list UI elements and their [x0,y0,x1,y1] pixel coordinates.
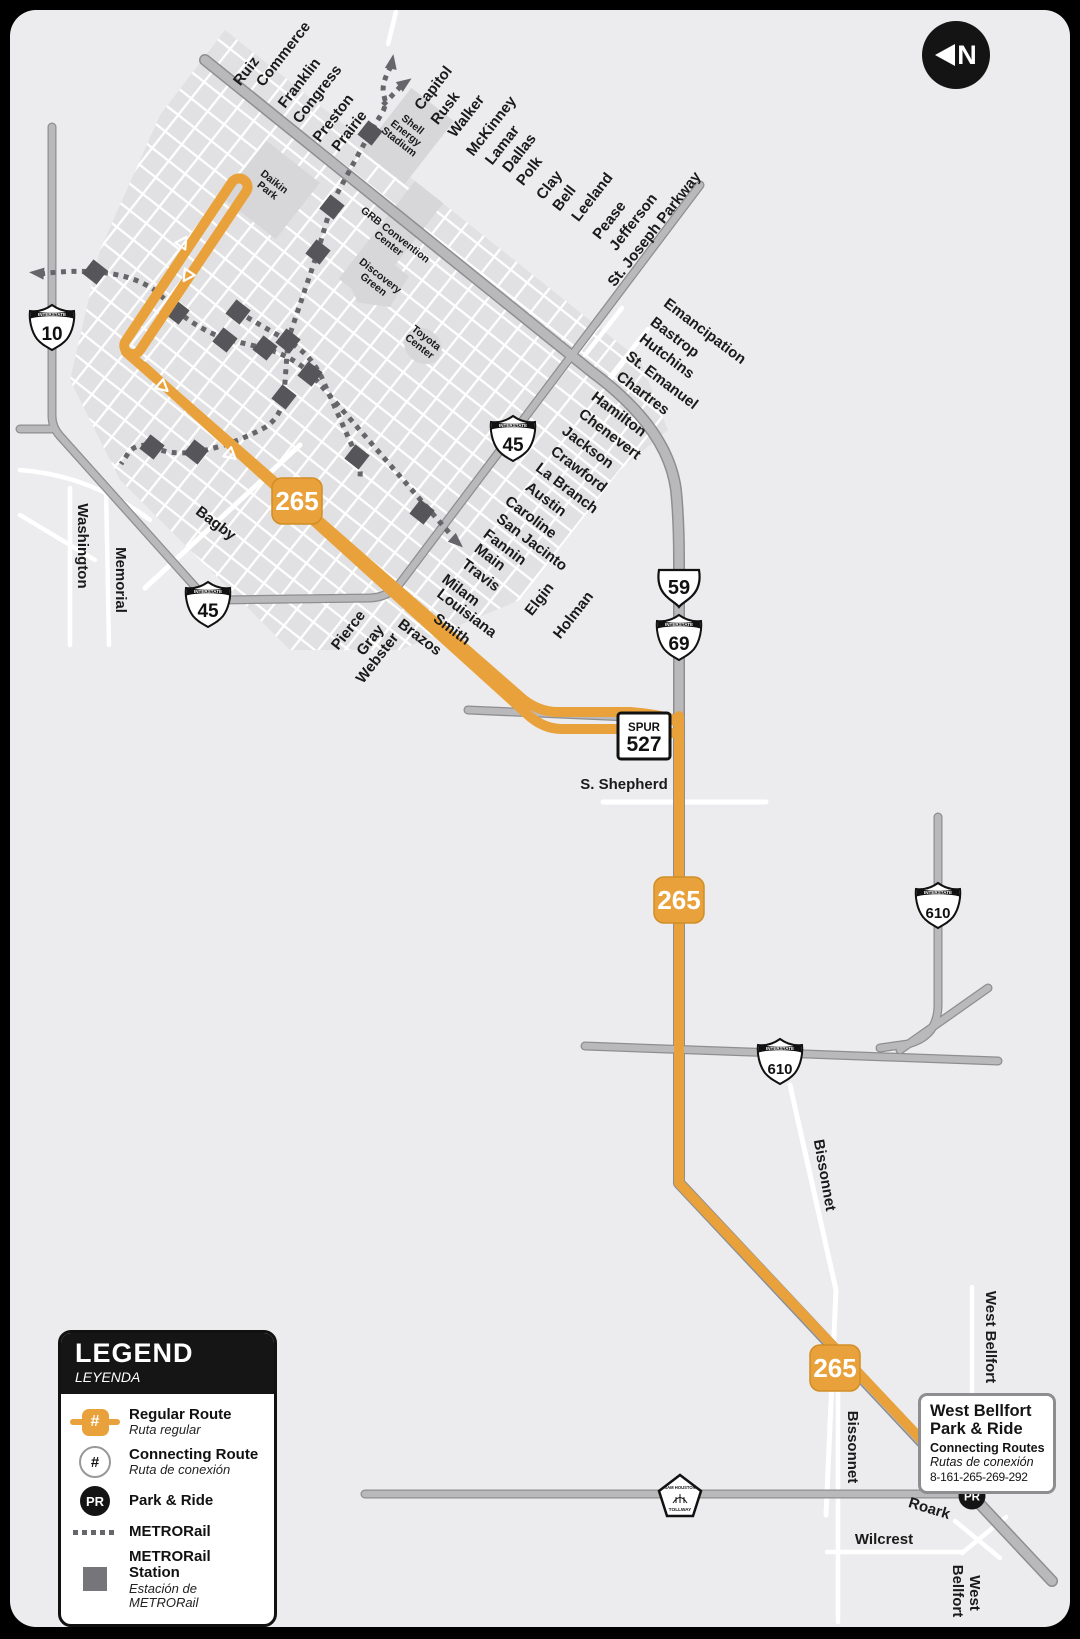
legend-label: METRORail Station [129,1549,264,1582]
legend-item-regular-route: # Regular Route Ruta regular [65,1402,268,1442]
svg-text:INTERSTATE: INTERSTATE [499,423,527,428]
legend-label: METRORail [129,1524,211,1541]
legend-label: Regular Route [129,1407,232,1424]
callout-title-line1: West Bellfort [930,1402,1046,1420]
legend-label: Connecting Route [129,1447,258,1464]
legend-sublabel: Estación de METRORail [129,1582,264,1611]
legend-item-metrorail: METRORail [65,1520,268,1545]
svg-text:527: 527 [626,733,661,756]
svg-text:265: 265 [275,486,318,516]
svg-text:SAM HOUSTON: SAM HOUSTON [664,1485,695,1490]
legend-sublabel: Ruta regular [129,1423,232,1437]
highway-shield-527: SPUR527 [618,713,670,759]
svg-text:265: 265 [813,1353,856,1383]
svg-text:610: 610 [767,1061,792,1078]
legend-label: Park & Ride [129,1493,213,1510]
legend: LEGEND LEYENDA # Regular Route Ruta regu… [58,1330,277,1627]
legend-title: LEGEND [75,1340,260,1367]
park-and-ride-callout: West Bellfort Park & Ride Connecting Rou… [918,1393,1056,1494]
callout-title-line2: Park & Ride [930,1420,1046,1438]
park-and-ride-symbol: PR [80,1486,110,1516]
svg-text:45: 45 [197,601,219,622]
legend-item-connecting-route: # Connecting Route Ruta de conexión [65,1442,268,1482]
route-map-page: INTERSTATE10INTERSTATE45INTERSTATE4559IN… [0,0,1080,1639]
street-label: West [966,1575,983,1611]
callout-route-numbers: 8-161-265-269-292 [930,1470,1046,1484]
legend-item-park-and-ride: PR Park & Ride [65,1482,268,1520]
svg-text:INTERSTATE: INTERSTATE [194,589,222,594]
street-label: S. Shepherd [580,776,668,793]
svg-text:610: 610 [925,905,950,922]
svg-text:INTERSTATE: INTERSTATE [766,1046,794,1051]
svg-text:45: 45 [502,435,524,456]
street-label: Washington [74,503,91,588]
legend-item-metrorail-station: METRORail Station Estación de METRORail [65,1545,268,1615]
legend-body: # Regular Route Ruta regular # Connectin… [61,1394,274,1624]
metrorail-icon [69,1530,121,1535]
svg-text:59: 59 [668,577,690,599]
svg-text:INTERSTATE: INTERSTATE [924,890,952,895]
legend-sublabel: Ruta de conexión [129,1463,258,1477]
street-label: Bellfort [949,1565,966,1618]
regular-route-symbol: # [82,1409,109,1436]
svg-text:TOLLWAY: TOLLWAY [669,1507,692,1513]
svg-text:69: 69 [668,634,689,655]
callout-connecting-routes-es: Rutas de conexión [930,1455,1046,1469]
street-label: Memorial [112,547,129,613]
street-label: Bissonnet [844,1411,861,1484]
regular-route-icon: # [69,1406,121,1438]
svg-text:INTERSTATE: INTERSTATE [38,312,66,317]
street-label: West Bellfort [982,1291,999,1383]
connecting-route-icon: # [69,1446,121,1478]
route-265-badge: 265 [654,877,704,923]
legend-header: LEGEND LEYENDA [61,1333,274,1394]
north-arrow-icon [935,44,955,66]
svg-text:265: 265 [657,885,700,915]
callout-connecting-routes: Connecting Routes [930,1441,1046,1455]
street-label: Wilcrest [855,1531,913,1548]
north-label: N [957,40,977,71]
north-indicator: N [922,21,990,89]
legend-subtitle: LEYENDA [75,1369,260,1385]
route-265-badge: 265 [272,478,322,524]
park-and-ride-icon: PR [69,1486,121,1516]
metrorail-station-icon [69,1567,121,1591]
route-265-badge: 265 [810,1345,860,1391]
connecting-route-symbol: # [79,1446,111,1478]
svg-text:INTERSTATE: INTERSTATE [665,622,693,627]
svg-text:10: 10 [41,324,62,345]
